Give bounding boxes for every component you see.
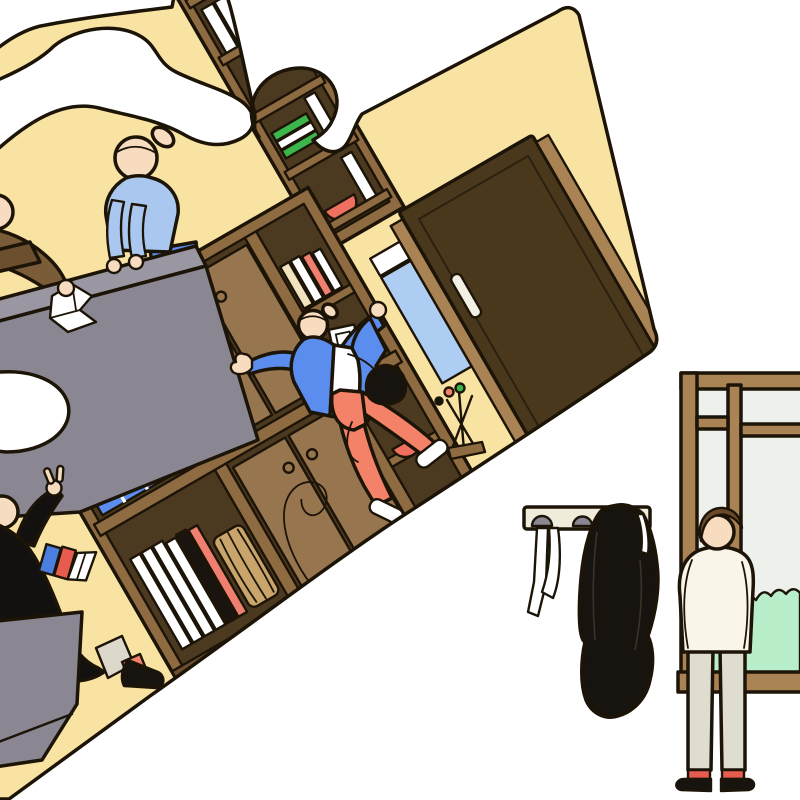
man-shoe — [721, 779, 754, 791]
book-green — [246, 0, 277, 29]
man-sock — [688, 770, 710, 779]
man-sock — [722, 770, 744, 779]
frame-transom-right — [741, 424, 800, 436]
window-scene — [524, 373, 800, 791]
illustration-svg — [0, 0, 800, 800]
woman-hand — [107, 259, 121, 273]
woman-arm — [107, 200, 124, 258]
man-leg-right — [720, 648, 745, 770]
umbrella-tip-dark — [436, 398, 443, 405]
frame-transom-left — [697, 417, 728, 429]
gown-person-head — [0, 496, 18, 528]
dancer-head — [299, 311, 328, 340]
man-shoe — [676, 779, 711, 791]
shoulder-bag — [367, 366, 406, 405]
woman-arm — [129, 204, 146, 258]
woman-head — [115, 137, 157, 179]
black-coat — [579, 505, 658, 717]
illustration-canvas: Flat editorial illustration: a large til… — [0, 0, 800, 800]
woman-hand — [129, 255, 143, 269]
dancer-raised-hand — [370, 302, 386, 318]
white-scarf — [528, 528, 560, 616]
rack-hook — [573, 517, 592, 527]
coat-rack — [524, 505, 658, 717]
umbrella-tip-salmon — [445, 388, 454, 397]
man-leg-left — [688, 648, 713, 770]
umbrella-tip-green — [456, 384, 465, 393]
rack-hook — [532, 516, 552, 526]
coworker-hand — [58, 280, 74, 296]
